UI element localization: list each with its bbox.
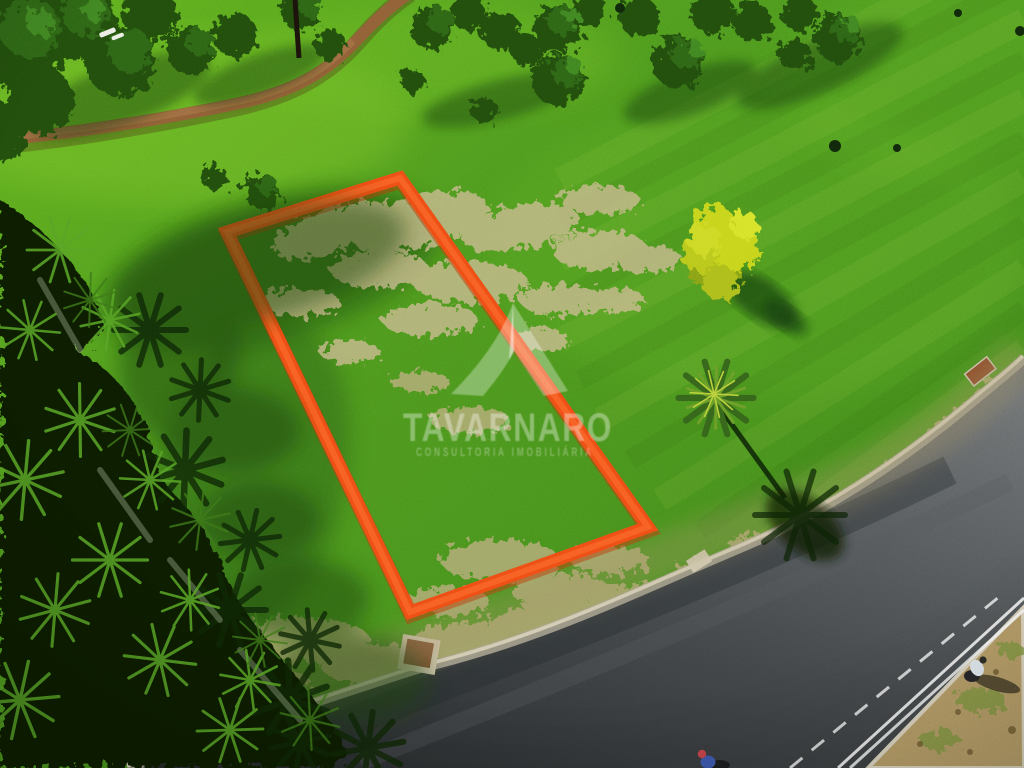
vignette [0,0,1024,768]
watermark-tagline: CONSULTORIA IMOBILIÁRIA [416,444,594,459]
watermark-brand: TAVARNARO [403,406,613,450]
aerial-photo: TAVARNARO CONSULTORIA IMOBILIÁRIA [0,0,1024,768]
aerial-photo-canvas: TAVARNARO CONSULTORIA IMOBILIÁRIA [0,0,1024,768]
